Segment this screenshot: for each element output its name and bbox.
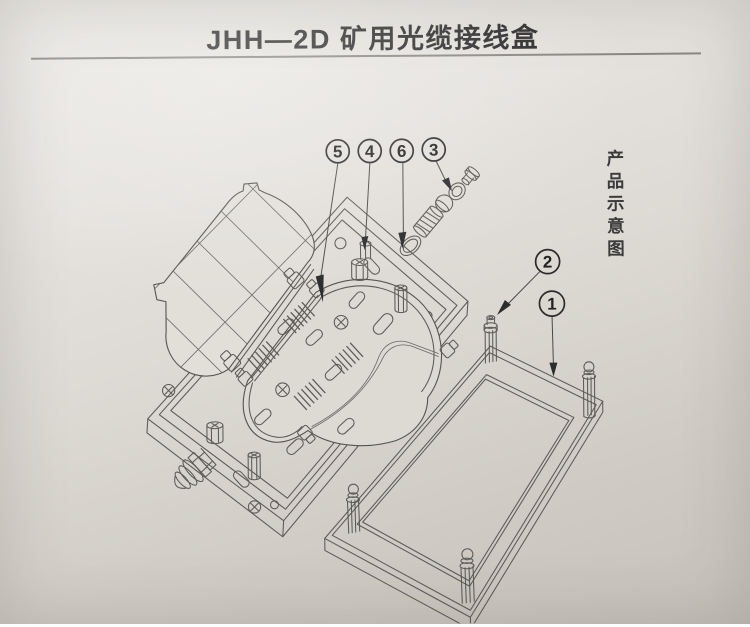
svg-text:1: 1: [547, 295, 557, 314]
callout-1: 1: [539, 291, 564, 316]
svg-text:3: 3: [429, 140, 439, 159]
corner-bolt-left: [346, 484, 359, 533]
paper-sheet: JHH—2D 矿用光缆接线盒 产品示意图: [0, 0, 750, 627]
floor-hole: [270, 501, 278, 509]
standing-screw: [248, 452, 260, 480]
svg-text:2: 2: [543, 253, 553, 272]
hex-standoff: [207, 422, 223, 444]
svg-text:5: 5: [333, 142, 343, 161]
callout-3: 3: [422, 138, 445, 161]
tray-clip: [439, 338, 460, 358]
gland-body: [412, 204, 444, 238]
floor-hole: [335, 238, 346, 249]
cable-gland-exploded: [412, 165, 482, 239]
callout-5: 5: [326, 140, 349, 163]
callout-4: 4: [358, 139, 381, 162]
callout-6: 6: [390, 139, 413, 162]
photographed-page: JHH—2D 矿用光缆接线盒 产品示意图: [0, 0, 750, 624]
rim-screw: [248, 501, 260, 513]
hex-standoff: [352, 259, 368, 281]
callout-2: 2: [536, 250, 560, 274]
svg-text:4: 4: [365, 142, 375, 161]
exploded-diagram: 5 4 6 3 2 1: [0, 0, 750, 627]
svg-text:6: 6: [397, 142, 407, 161]
